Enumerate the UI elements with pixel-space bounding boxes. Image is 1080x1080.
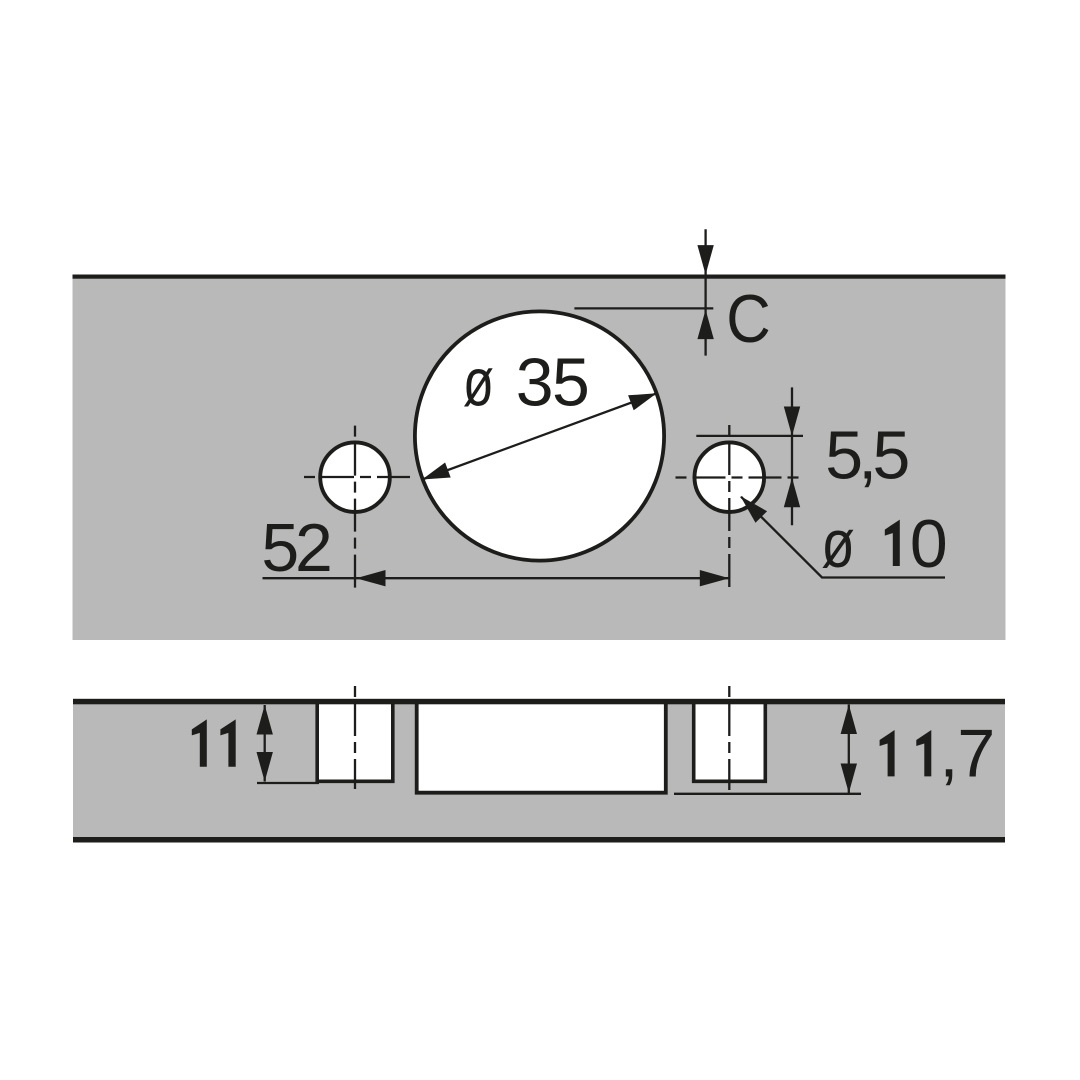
svg-text:0: 0 <box>910 506 948 582</box>
svg-text:ø: ø <box>821 506 855 582</box>
svg-text:C: C <box>726 281 771 357</box>
svg-text:ø: ø <box>463 344 494 420</box>
svg-text:,7: ,7 <box>940 715 995 791</box>
svg-text:5,5: 5,5 <box>825 417 907 493</box>
svg-text:52: 52 <box>261 510 330 586</box>
svg-text:35: 35 <box>516 344 589 420</box>
